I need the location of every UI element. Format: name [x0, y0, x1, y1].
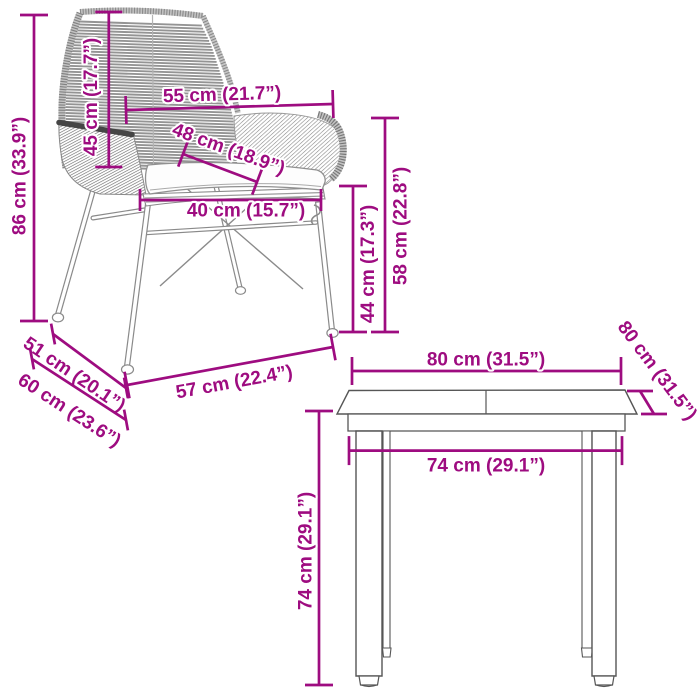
svg-text:45 cm (17.7”): 45 cm (17.7”): [81, 38, 102, 156]
svg-text:74 cm (29.1”): 74 cm (29.1”): [427, 456, 545, 477]
svg-text:40 cm (15.7”): 40 cm (15.7”): [187, 201, 305, 222]
svg-text:74 cm (29.1”): 74 cm (29.1”): [296, 492, 317, 610]
svg-text:86 cm (33.9”): 86 cm (33.9”): [10, 117, 31, 235]
svg-text:80 cm (31.5”): 80 cm (31.5”): [427, 350, 545, 371]
svg-text:44 cm (17.3”): 44 cm (17.3”): [358, 205, 379, 323]
svg-text:57 cm (22.4”): 57 cm (22.4”): [174, 361, 294, 403]
svg-text:55 cm (21.7”): 55 cm (21.7”): [163, 83, 282, 108]
svg-text:58 cm (22.8”): 58 cm (22.8”): [391, 167, 412, 285]
